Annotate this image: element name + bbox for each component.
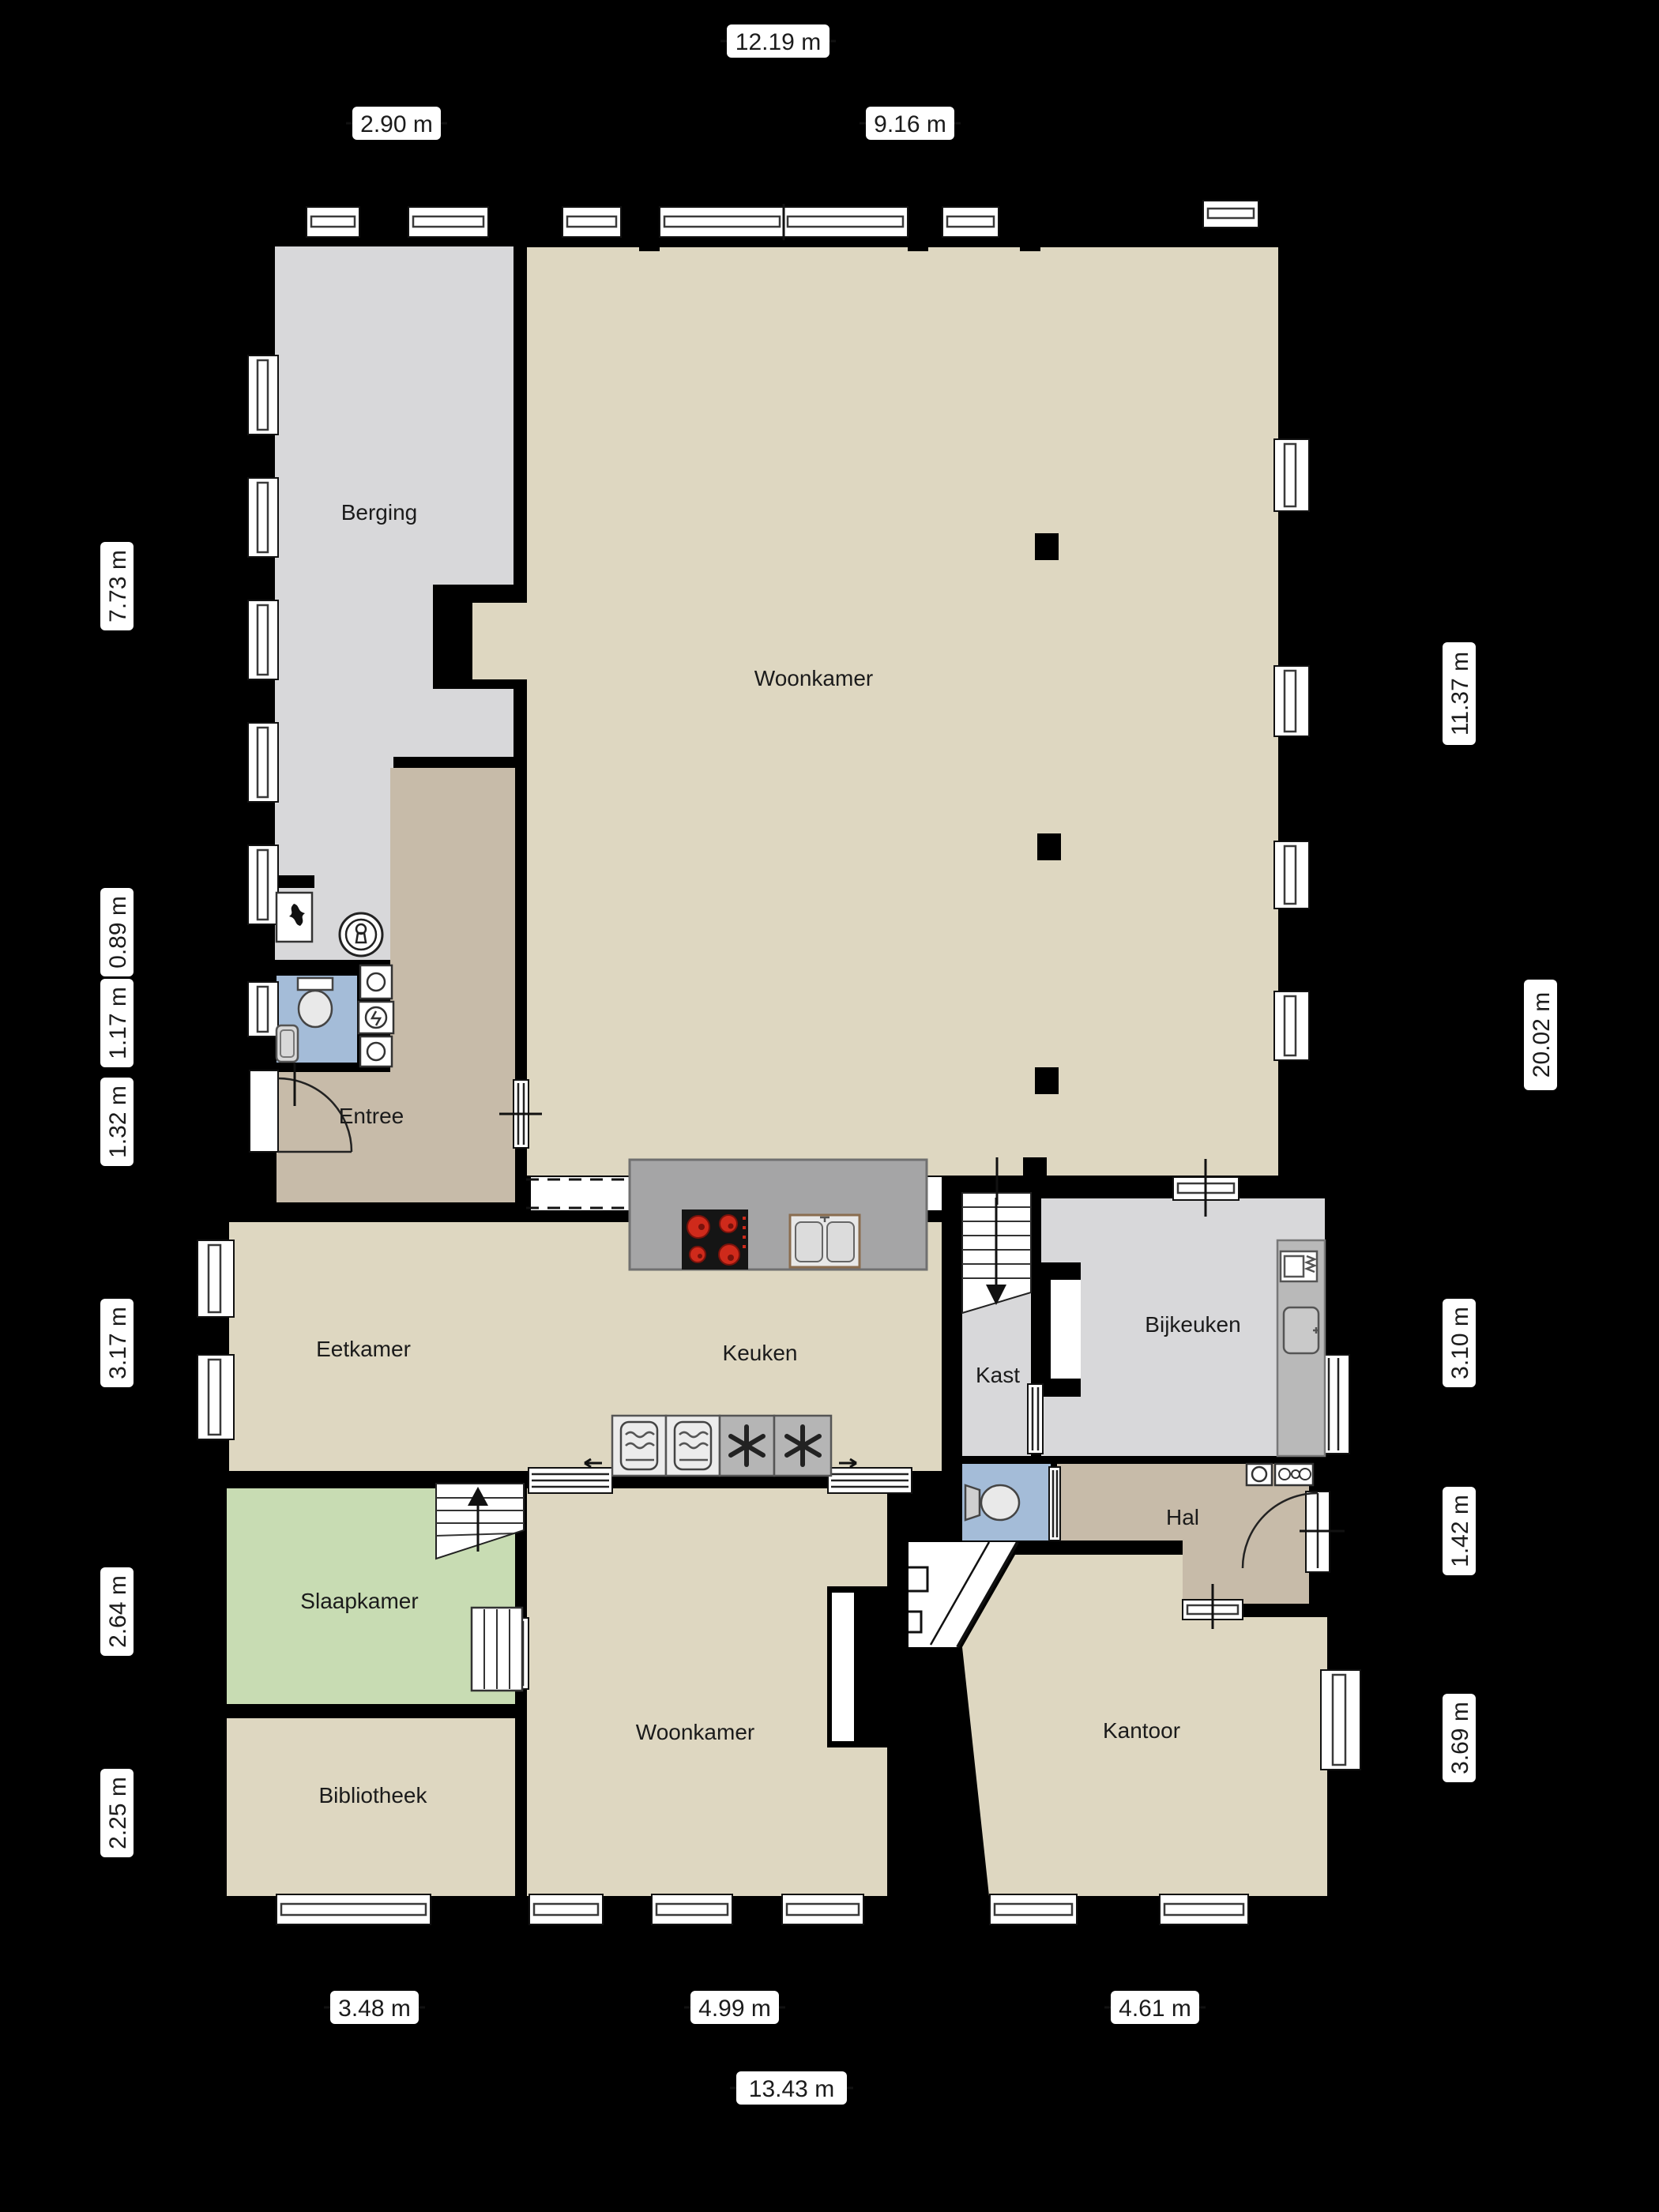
svg-text:20.02 m: 20.02 m	[1529, 992, 1555, 1078]
window	[248, 600, 278, 679]
dim-right-3: 3.10 m	[1443, 1299, 1476, 1387]
window	[248, 478, 278, 557]
svg-text:3.69 m: 3.69 m	[1447, 1702, 1473, 1774]
svg-text:13.43 m: 13.43 m	[749, 2076, 834, 2102]
window	[1274, 439, 1309, 511]
svg-text:1.17 m: 1.17 m	[105, 987, 131, 1059]
dim-right-5: 3.69 m	[1443, 1694, 1476, 1782]
oven-icon	[612, 1416, 666, 1476]
kitchen-sink-icon	[790, 1215, 860, 1267]
window	[652, 1894, 732, 1924]
svg-text:2.90 m: 2.90 m	[360, 111, 433, 137]
window	[562, 207, 621, 237]
svg-text:1.32 m: 1.32 m	[105, 1085, 131, 1158]
cooktop-icon	[682, 1209, 748, 1270]
dim-top-woonkamer: 9.16 m	[860, 107, 961, 140]
svg-text:3.48 m: 3.48 m	[338, 1996, 411, 2022]
window	[248, 845, 278, 924]
floorplan-page: Berging Woonkamer Entree Eetkamer Keuken…	[0, 0, 1659, 2212]
room-woonkamer-top	[527, 247, 1278, 1176]
window	[1160, 1894, 1248, 1924]
staircase-down-icon	[962, 1193, 1031, 1313]
hal-boiler-icons	[1247, 1464, 1313, 1485]
window	[660, 204, 908, 240]
fireplace-icon	[827, 1586, 887, 1747]
laundry-sink-icon	[1281, 1251, 1317, 1281]
window	[990, 1894, 1077, 1924]
dim-bottom-3: 4.61 m	[1104, 1991, 1206, 2024]
toilet-2-icon	[965, 1485, 1019, 1520]
label-kast: Kast	[976, 1363, 1020, 1387]
chimney-berging	[433, 585, 528, 689]
window	[307, 207, 359, 237]
label-slaapkamer: Slaapkamer	[300, 1589, 418, 1613]
window	[1274, 991, 1309, 1060]
utility-sink-icon	[1284, 1307, 1319, 1353]
washing-machine-icon	[340, 913, 382, 956]
meter-cupboard-icons	[359, 965, 393, 1066]
label-bijkeuken: Bijkeuken	[1145, 1312, 1240, 1337]
dim-left-7: 2.25 m	[100, 1769, 134, 1857]
dim-right-4: 1.42 m	[1443, 1487, 1476, 1575]
svg-text:3.17 m: 3.17 m	[105, 1307, 131, 1379]
dim-left-1: 7.73 m	[100, 542, 134, 630]
dim-bottom-2: 4.99 m	[684, 1991, 785, 2024]
svg-text:0.89 m: 0.89 m	[105, 896, 131, 969]
window	[1321, 1670, 1360, 1770]
bijkeuken-counter	[1277, 1240, 1325, 1456]
window	[942, 207, 999, 237]
label-woonkamer-bottom: Woonkamer	[636, 1720, 754, 1744]
window	[1274, 666, 1309, 736]
label-hal: Hal	[1166, 1505, 1199, 1529]
dim-top-berging: 2.90 m	[346, 107, 447, 140]
dim-bottom-1: 3.48 m	[324, 1991, 425, 2024]
svg-text:11.37 m: 11.37 m	[1447, 652, 1473, 735]
svg-text:9.16 m: 9.16 m	[874, 111, 946, 137]
window	[276, 1894, 431, 1924]
window	[408, 207, 488, 237]
window	[529, 1894, 603, 1924]
dim-left-3: 1.17 m	[100, 979, 134, 1067]
window	[248, 982, 278, 1036]
dim-left-4: 1.32 m	[100, 1078, 134, 1166]
svg-text:2.64 m: 2.64 m	[105, 1575, 131, 1648]
window	[248, 355, 278, 434]
boiler-icon	[276, 893, 312, 942]
label-keuken: Keuken	[723, 1341, 798, 1365]
window	[1274, 841, 1309, 908]
window	[782, 1894, 863, 1924]
label-woonkamer-top: Woonkamer	[754, 666, 873, 690]
label-kantoor: Kantoor	[1103, 1718, 1180, 1743]
svg-text:12.19 m: 12.19 m	[735, 29, 821, 55]
kitchen-island	[630, 1160, 927, 1270]
window	[248, 723, 278, 802]
dim-right-1: 11.37 m	[1443, 642, 1476, 745]
dim-right-2: 20.02 m	[1524, 980, 1557, 1090]
svg-text:3.10 m: 3.10 m	[1447, 1307, 1473, 1379]
dim-left-5: 3.17 m	[100, 1299, 134, 1387]
label-bibliotheek: Bibliotheek	[319, 1783, 428, 1808]
hand-basin-icon	[276, 1025, 298, 1062]
wardrobe-icon	[472, 1608, 522, 1691]
svg-text:2.25 m: 2.25 m	[105, 1777, 131, 1849]
dim-top-overall: 12.19 m	[720, 24, 836, 58]
freezer-icon	[720, 1416, 774, 1476]
window	[1203, 201, 1258, 228]
label-eetkamer: Eetkamer	[316, 1337, 411, 1361]
svg-text:1.42 m: 1.42 m	[1447, 1495, 1473, 1567]
window	[197, 1240, 234, 1317]
appliance-row	[612, 1416, 831, 1476]
room-floors	[227, 246, 1327, 1896]
svg-text:7.73 m: 7.73 m	[105, 550, 131, 623]
interior-door	[1028, 1384, 1043, 1454]
oven-icon	[666, 1416, 720, 1476]
dim-bottom-overall: 13.43 m	[730, 2071, 853, 2105]
svg-text:4.61 m: 4.61 m	[1119, 1996, 1191, 2022]
toilet-1-icon	[298, 978, 333, 1027]
chimney-bijkeuken	[1036, 1262, 1081, 1397]
dim-left-6: 2.64 m	[100, 1567, 134, 1656]
floorplan-canvas: Berging Woonkamer Entree Eetkamer Keuken…	[0, 0, 1659, 2212]
label-berging: Berging	[341, 500, 418, 525]
svg-text:4.99 m: 4.99 m	[698, 1996, 771, 2022]
freezer-icon	[774, 1416, 831, 1476]
window	[197, 1355, 234, 1439]
dim-left-2: 0.89 m	[100, 888, 134, 976]
label-entree: Entree	[339, 1104, 404, 1128]
interior-door	[1049, 1467, 1060, 1540]
